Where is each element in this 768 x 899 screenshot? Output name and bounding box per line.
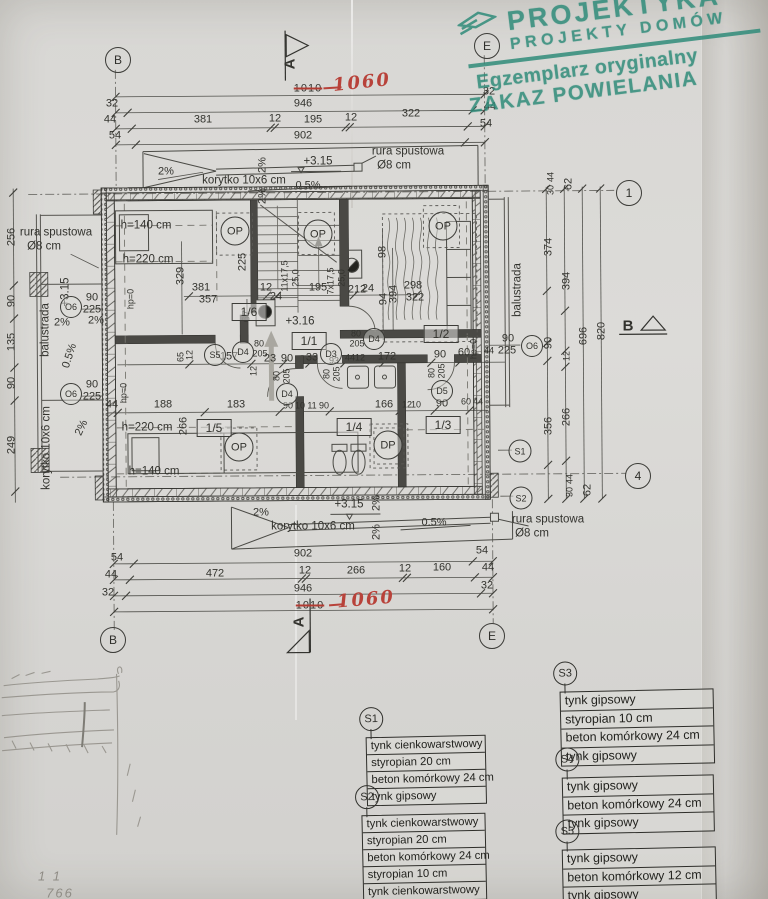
plan-symbol-marker: S5 bbox=[204, 344, 226, 366]
dimension-label: 1010 bbox=[296, 601, 324, 612]
dimension-label: 183 bbox=[227, 400, 245, 411]
dimension-label: rura spustowa bbox=[20, 227, 92, 239]
wall-type-legend-s5: S5tynk gipsowybeton komórkowy 12 cmtynk … bbox=[561, 816, 717, 899]
dimension-label: 329 bbox=[176, 267, 187, 285]
dimension-label: 2% bbox=[158, 167, 174, 178]
plan-symbol-marker: S2 bbox=[510, 487, 533, 510]
axis-marker: 4 bbox=[625, 463, 651, 489]
dimension-label: 394 bbox=[389, 285, 400, 303]
dimension-label: 44 bbox=[473, 398, 483, 407]
dimension-label: 25,0 bbox=[338, 269, 347, 287]
room-number-label: 1/3 bbox=[426, 416, 461, 434]
plan-symbol-marker: O6 bbox=[60, 296, 82, 318]
dimension-label: 12 bbox=[563, 351, 572, 361]
dimension-label: Ø8 cm bbox=[515, 528, 549, 540]
dimension-label: 2% bbox=[372, 495, 383, 511]
dimension-label: 44 bbox=[547, 172, 556, 182]
dimension-label: 33 bbox=[306, 353, 318, 364]
wall-type-legend-s2: S2tynk cienkowarstwowystyropian 20 cmbet… bbox=[361, 783, 487, 899]
dimension-label: 298 bbox=[404, 281, 422, 292]
dimension-label: h=140 cm bbox=[129, 466, 180, 478]
dimension-label: 7x17,5 bbox=[327, 267, 336, 294]
dimension-label: korytko 10x6 cm bbox=[202, 175, 286, 187]
dimension-label: 12 bbox=[299, 566, 311, 577]
plan-symbol-marker: D4 bbox=[232, 341, 254, 363]
dimension-label: rura spustowa bbox=[512, 514, 584, 526]
dimension-label: 24 bbox=[362, 284, 374, 295]
dimension-label: 2% bbox=[258, 188, 269, 204]
dimension-label: 256 bbox=[7, 228, 18, 246]
dimension-label: rura spustowa bbox=[372, 146, 444, 158]
dimension-label: 54 bbox=[476, 546, 488, 557]
plan-symbol-marker: D4 bbox=[363, 328, 385, 350]
dimension-label: 266 bbox=[347, 566, 365, 577]
dimension-label: 766 bbox=[46, 887, 74, 899]
dimension-label: 62 bbox=[583, 484, 594, 496]
dimension-label: 1010 bbox=[294, 84, 322, 95]
dimension-label: 90 bbox=[86, 293, 98, 304]
dimension-label: 205 bbox=[333, 366, 342, 381]
dimension-label: 195 bbox=[309, 283, 327, 294]
dimension-label: 62 bbox=[564, 178, 575, 190]
dimension-label: 249 bbox=[7, 436, 18, 454]
dimension-label: 44 bbox=[345, 354, 355, 363]
dimension-label: 90 bbox=[434, 350, 446, 361]
dimension-label: 32 bbox=[102, 588, 114, 599]
dimension-label: 80 bbox=[351, 330, 361, 339]
dimension-label: 44 bbox=[105, 570, 117, 581]
dimension-label: 10 bbox=[295, 402, 305, 411]
plan-symbol-marker: OP bbox=[429, 212, 458, 241]
wall-type-marker: S4 bbox=[555, 747, 579, 771]
dimension-label: 12 bbox=[250, 366, 259, 376]
wall-layer-row: tynk cienkowarstwowy bbox=[364, 882, 486, 899]
dimension-label: 2% bbox=[54, 318, 70, 329]
dimension-label: 205 bbox=[283, 368, 292, 383]
wall-type-marker: S5 bbox=[555, 819, 579, 843]
dimension-label: 98 bbox=[378, 246, 389, 258]
dimension-label: 32 bbox=[483, 87, 495, 98]
dimension-label: 2% bbox=[253, 508, 269, 519]
axis-marker: B bbox=[100, 627, 126, 653]
wall-layers-table: tynk gipsowybeton komórkowy 12 cmtynk gi… bbox=[562, 846, 717, 899]
dimension-label: h=220 cm bbox=[122, 422, 173, 434]
axis-marker: B bbox=[105, 47, 131, 73]
dimension-label: 44 bbox=[566, 474, 575, 484]
dimension-label: 357 bbox=[199, 295, 217, 306]
dimension-label: 902 bbox=[294, 549, 312, 560]
dimension-label: 11x17,5 bbox=[281, 260, 290, 291]
dimension-label: 80 bbox=[273, 371, 282, 381]
dimension-label: 90 bbox=[7, 377, 18, 389]
dimension-label: 54 bbox=[109, 131, 121, 142]
dimension-label: A bbox=[292, 617, 307, 628]
plan-symbol-marker: OP bbox=[304, 220, 333, 249]
dimension-label: 696 bbox=[579, 327, 590, 345]
room-number-label: 1/5 bbox=[197, 419, 232, 437]
plan-symbol-marker: D5 bbox=[431, 380, 453, 402]
wall-type-marker: S2 bbox=[355, 785, 379, 809]
dimension-label: 188 bbox=[154, 400, 172, 411]
dimension-label: korytko 10x6 cm bbox=[271, 521, 355, 533]
dimension-label: +3.15 bbox=[334, 499, 363, 511]
dimension-label: 266 bbox=[179, 417, 190, 435]
dimension-label: 381 bbox=[194, 115, 212, 126]
dimension-label: 322 bbox=[402, 109, 420, 120]
plan-symbol-marker: D4 bbox=[276, 383, 298, 405]
room-number-label: 1/4 bbox=[337, 418, 372, 436]
dimension-label: 381 bbox=[192, 283, 210, 294]
dimension-label: 225 bbox=[498, 346, 516, 357]
dimension-label: 44 bbox=[104, 115, 116, 126]
dimension-label: 44 bbox=[106, 400, 118, 411]
dimension-label: 1060 bbox=[336, 589, 395, 612]
dimension-label: 54 bbox=[111, 553, 123, 564]
dimension-label: 356 bbox=[544, 417, 555, 435]
dimension-label: 30 bbox=[547, 185, 556, 195]
dimension-label: 946 bbox=[294, 584, 312, 595]
dimension-label: 2% bbox=[372, 524, 383, 540]
axis-marker: E bbox=[479, 623, 505, 649]
dimension-label: 90 bbox=[86, 380, 98, 391]
dimension-label: 135 bbox=[7, 333, 18, 351]
dimension-label: 12 bbox=[186, 350, 195, 360]
dimension-label: 2% bbox=[88, 316, 104, 327]
dimension-label: 23 bbox=[264, 354, 276, 365]
dimension-label: hp=0 bbox=[120, 383, 129, 403]
dimension-label: 205 bbox=[438, 363, 447, 378]
dimension-label: 90 bbox=[319, 402, 329, 411]
dimension-label: 172 bbox=[378, 352, 396, 363]
dimension-label: 225 bbox=[238, 253, 249, 271]
plan-symbol-marker: OP bbox=[225, 433, 254, 462]
dimension-label: 90 bbox=[281, 354, 293, 365]
plan-symbol-marker: OP bbox=[221, 217, 250, 246]
axis-marker: 1 bbox=[616, 180, 642, 206]
dimension-label: 374 bbox=[544, 238, 555, 256]
dimension-label: 1 1 bbox=[38, 870, 62, 883]
dimension-label: h=140 cm bbox=[121, 220, 172, 232]
dimension-label: 10 bbox=[411, 401, 421, 410]
wall-type-marker: S3 bbox=[553, 661, 577, 685]
dimension-label: 195 bbox=[304, 115, 322, 126]
wall-layers-table: tynk cienkowarstwowystyropian 20 cmbeton… bbox=[361, 813, 487, 899]
dimension-label: 166 bbox=[375, 400, 393, 411]
dimension-label: 322 bbox=[406, 293, 424, 304]
plan-symbol-marker: DP bbox=[374, 431, 403, 460]
dimension-label: 0.5% bbox=[421, 518, 446, 529]
plan-symbol-marker: S1 bbox=[509, 440, 532, 463]
dimension-label: 32 bbox=[481, 581, 493, 592]
dimension-label: h=220 cm bbox=[123, 254, 174, 266]
dimension-label: 12 bbox=[269, 114, 281, 125]
dimension-label: 225 bbox=[83, 392, 101, 403]
dimension-label: A bbox=[283, 59, 298, 70]
dimension-label: 80 bbox=[323, 369, 332, 379]
dimension-label: 32 bbox=[106, 99, 118, 110]
plan-symbol-marker: O6 bbox=[521, 335, 543, 357]
scanned-floor-plan-page: PROJEKTYKA PROJEKTY DOMÓW Egzemplarz ory… bbox=[0, 0, 768, 899]
room-number-label: 1/2 bbox=[424, 325, 459, 343]
dimension-label: 902 bbox=[294, 131, 312, 142]
dimension-label: B bbox=[623, 319, 634, 334]
dimension-label: 60 bbox=[461, 398, 471, 407]
wall-type-marker: S1 bbox=[359, 707, 383, 731]
dimension-label: Ø8 cm bbox=[27, 241, 61, 253]
wall-layer-row: tynk gipsowy bbox=[564, 884, 716, 899]
dimension-label: 54 bbox=[480, 119, 492, 130]
dimension-label: 0.5% bbox=[295, 181, 320, 192]
dimension-label: 24 bbox=[270, 292, 282, 303]
dimension-label: 12 bbox=[399, 564, 411, 575]
dimension-label: 44 bbox=[484, 102, 496, 113]
plan-symbol-marker: O6 bbox=[60, 383, 82, 405]
dimension-label: korytko 10x6 cm bbox=[41, 406, 53, 490]
dimension-label: 90 bbox=[544, 337, 555, 349]
dimension-label: 30 bbox=[566, 487, 575, 497]
dimension-label: 2% bbox=[258, 157, 269, 173]
room-number-label: 1/6 bbox=[232, 303, 267, 321]
dimension-label: 44 bbox=[482, 563, 494, 574]
dimension-label: 160 bbox=[433, 563, 451, 574]
axis-marker: E bbox=[474, 33, 500, 59]
dimension-label: 472 bbox=[206, 569, 224, 580]
dimension-label: 11 bbox=[307, 402, 316, 411]
dimension-label: 25,0 bbox=[292, 269, 301, 287]
dimension-label: 12 bbox=[345, 113, 357, 124]
dimension-label: Ø8 cm bbox=[377, 160, 411, 172]
dimension-label: +3.16 bbox=[285, 316, 314, 328]
dimension-label: 946 bbox=[294, 99, 312, 110]
dimension-label: 12 bbox=[355, 354, 365, 363]
dimension-label: 80 bbox=[428, 368, 437, 378]
dimension-label: balustrada bbox=[40, 303, 52, 357]
dimension-label: 90 bbox=[7, 295, 18, 307]
pencil-sketch bbox=[2, 667, 141, 836]
dimension-label: 44 bbox=[484, 347, 494, 356]
plan-symbol-marker: D3 bbox=[320, 343, 342, 365]
dimension-label: +3.15 bbox=[303, 156, 332, 168]
dimension-label: balustrada bbox=[512, 263, 524, 317]
dimension-label: hp=0 bbox=[470, 339, 479, 359]
dimension-label: 80 bbox=[254, 340, 264, 349]
dimension-label: 266 bbox=[562, 408, 573, 426]
dimension-label: hp=0 bbox=[127, 289, 136, 309]
dimension-label: 820 bbox=[597, 322, 608, 340]
dimension-label: 90 bbox=[502, 334, 514, 345]
dimension-label: 394 bbox=[562, 272, 573, 290]
